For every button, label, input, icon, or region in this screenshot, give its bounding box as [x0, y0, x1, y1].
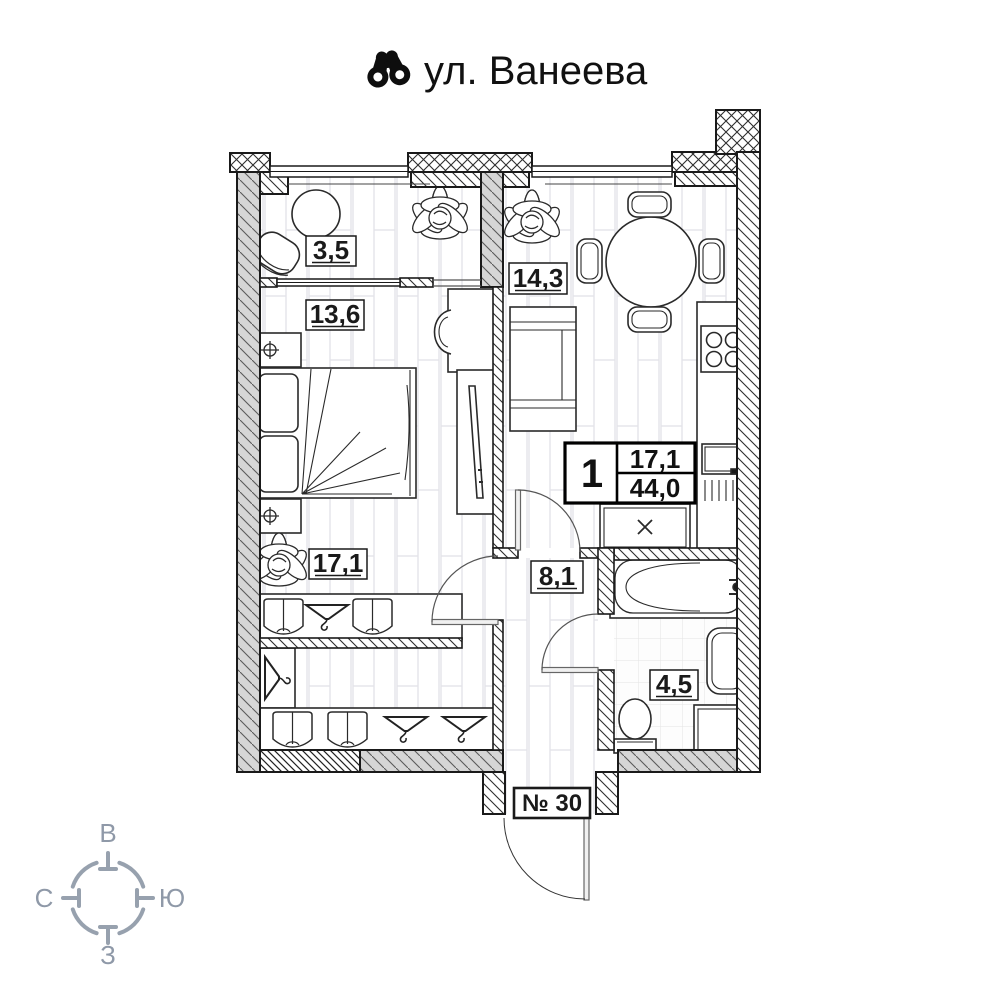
partition-bathroom [598, 670, 614, 750]
partition-hallway [493, 620, 503, 750]
floorplan-page: 3,5 13,6 14,3 17,1 8,1 4,5 [0, 0, 1000, 1000]
entry-stub-right [596, 772, 618, 814]
exterior-wall-bottom [360, 750, 503, 772]
area-label-kitchen: 14,3 [509, 263, 567, 294]
shirt-icon [328, 712, 367, 747]
partition [260, 278, 277, 287]
wall-inner-band [411, 172, 529, 187]
compass-label-south: Ю [159, 883, 185, 913]
compass-label-north: С [35, 883, 54, 913]
area-label-bedroom: 13,6 [306, 299, 364, 330]
area-value: 4,5 [656, 669, 692, 699]
area-label-bathroom: 4,5 [650, 669, 698, 700]
area-value: 13,6 [310, 299, 361, 329]
apartment-info-box: 1 17,1 44,0 [565, 443, 695, 503]
wall-column [481, 172, 503, 287]
area-label-loggia: 3,5 [306, 235, 356, 266]
exterior-wall-bottom-right [618, 750, 737, 772]
rooms-count: 1 [581, 452, 603, 496]
washing-machine [600, 504, 690, 551]
apartment-number-box: № 30 [514, 788, 590, 818]
compass: В С Ю З [35, 818, 186, 970]
area-label-living: 17,1 [309, 548, 367, 579]
dining-table [606, 217, 696, 307]
apartment-number: № 30 [522, 790, 582, 817]
partition-bedroom-kitchen [493, 287, 503, 548]
desk [448, 289, 497, 372]
shirt-icon [273, 712, 312, 747]
exterior-wall-notch [716, 110, 760, 154]
exterior-wall-top-corner [230, 153, 270, 172]
area-value: 17,1 [313, 548, 364, 578]
partition-wardrobe [260, 638, 462, 648]
living-area: 17,1 [630, 444, 681, 474]
exterior-wall-top [408, 153, 532, 172]
floorplan-drawing: 3,5 13,6 14,3 17,1 8,1 4,5 [0, 0, 1000, 1000]
exterior-wall-right [737, 152, 760, 772]
compass-label-east: В [99, 818, 116, 848]
compass-tick-left [63, 890, 79, 906]
area-label-hallway: 8,1 [531, 561, 583, 593]
exterior-wall-left [237, 170, 260, 772]
page-title: ул. Ванеева [424, 49, 648, 93]
area-value: 14,3 [513, 263, 564, 293]
sofa [510, 307, 576, 431]
wall-inner-band [675, 172, 737, 186]
total-area: 44,0 [630, 473, 681, 503]
partition-bathroom-top [614, 548, 737, 560]
partition [400, 278, 433, 287]
shirt-icon [264, 599, 303, 634]
exterior-wall-bottom-left [260, 750, 360, 772]
header: ул. Ванеева [365, 49, 648, 93]
area-value: 3,5 [313, 235, 349, 265]
compass-label-west: З [100, 940, 116, 970]
compass-tick-top [100, 853, 116, 869]
compass-tick-right [137, 890, 153, 906]
binoculars-icon [365, 49, 411, 89]
pillow [259, 436, 298, 492]
floor-hallway [503, 558, 598, 814]
door-entrance [504, 817, 589, 900]
shirt-icon [353, 599, 392, 634]
pillow [259, 374, 298, 432]
pouf [292, 190, 340, 238]
partition-bathroom [598, 548, 614, 614]
bathtub [610, 556, 747, 618]
entry-stub-left [483, 772, 505, 814]
area-value: 8,1 [539, 561, 575, 591]
